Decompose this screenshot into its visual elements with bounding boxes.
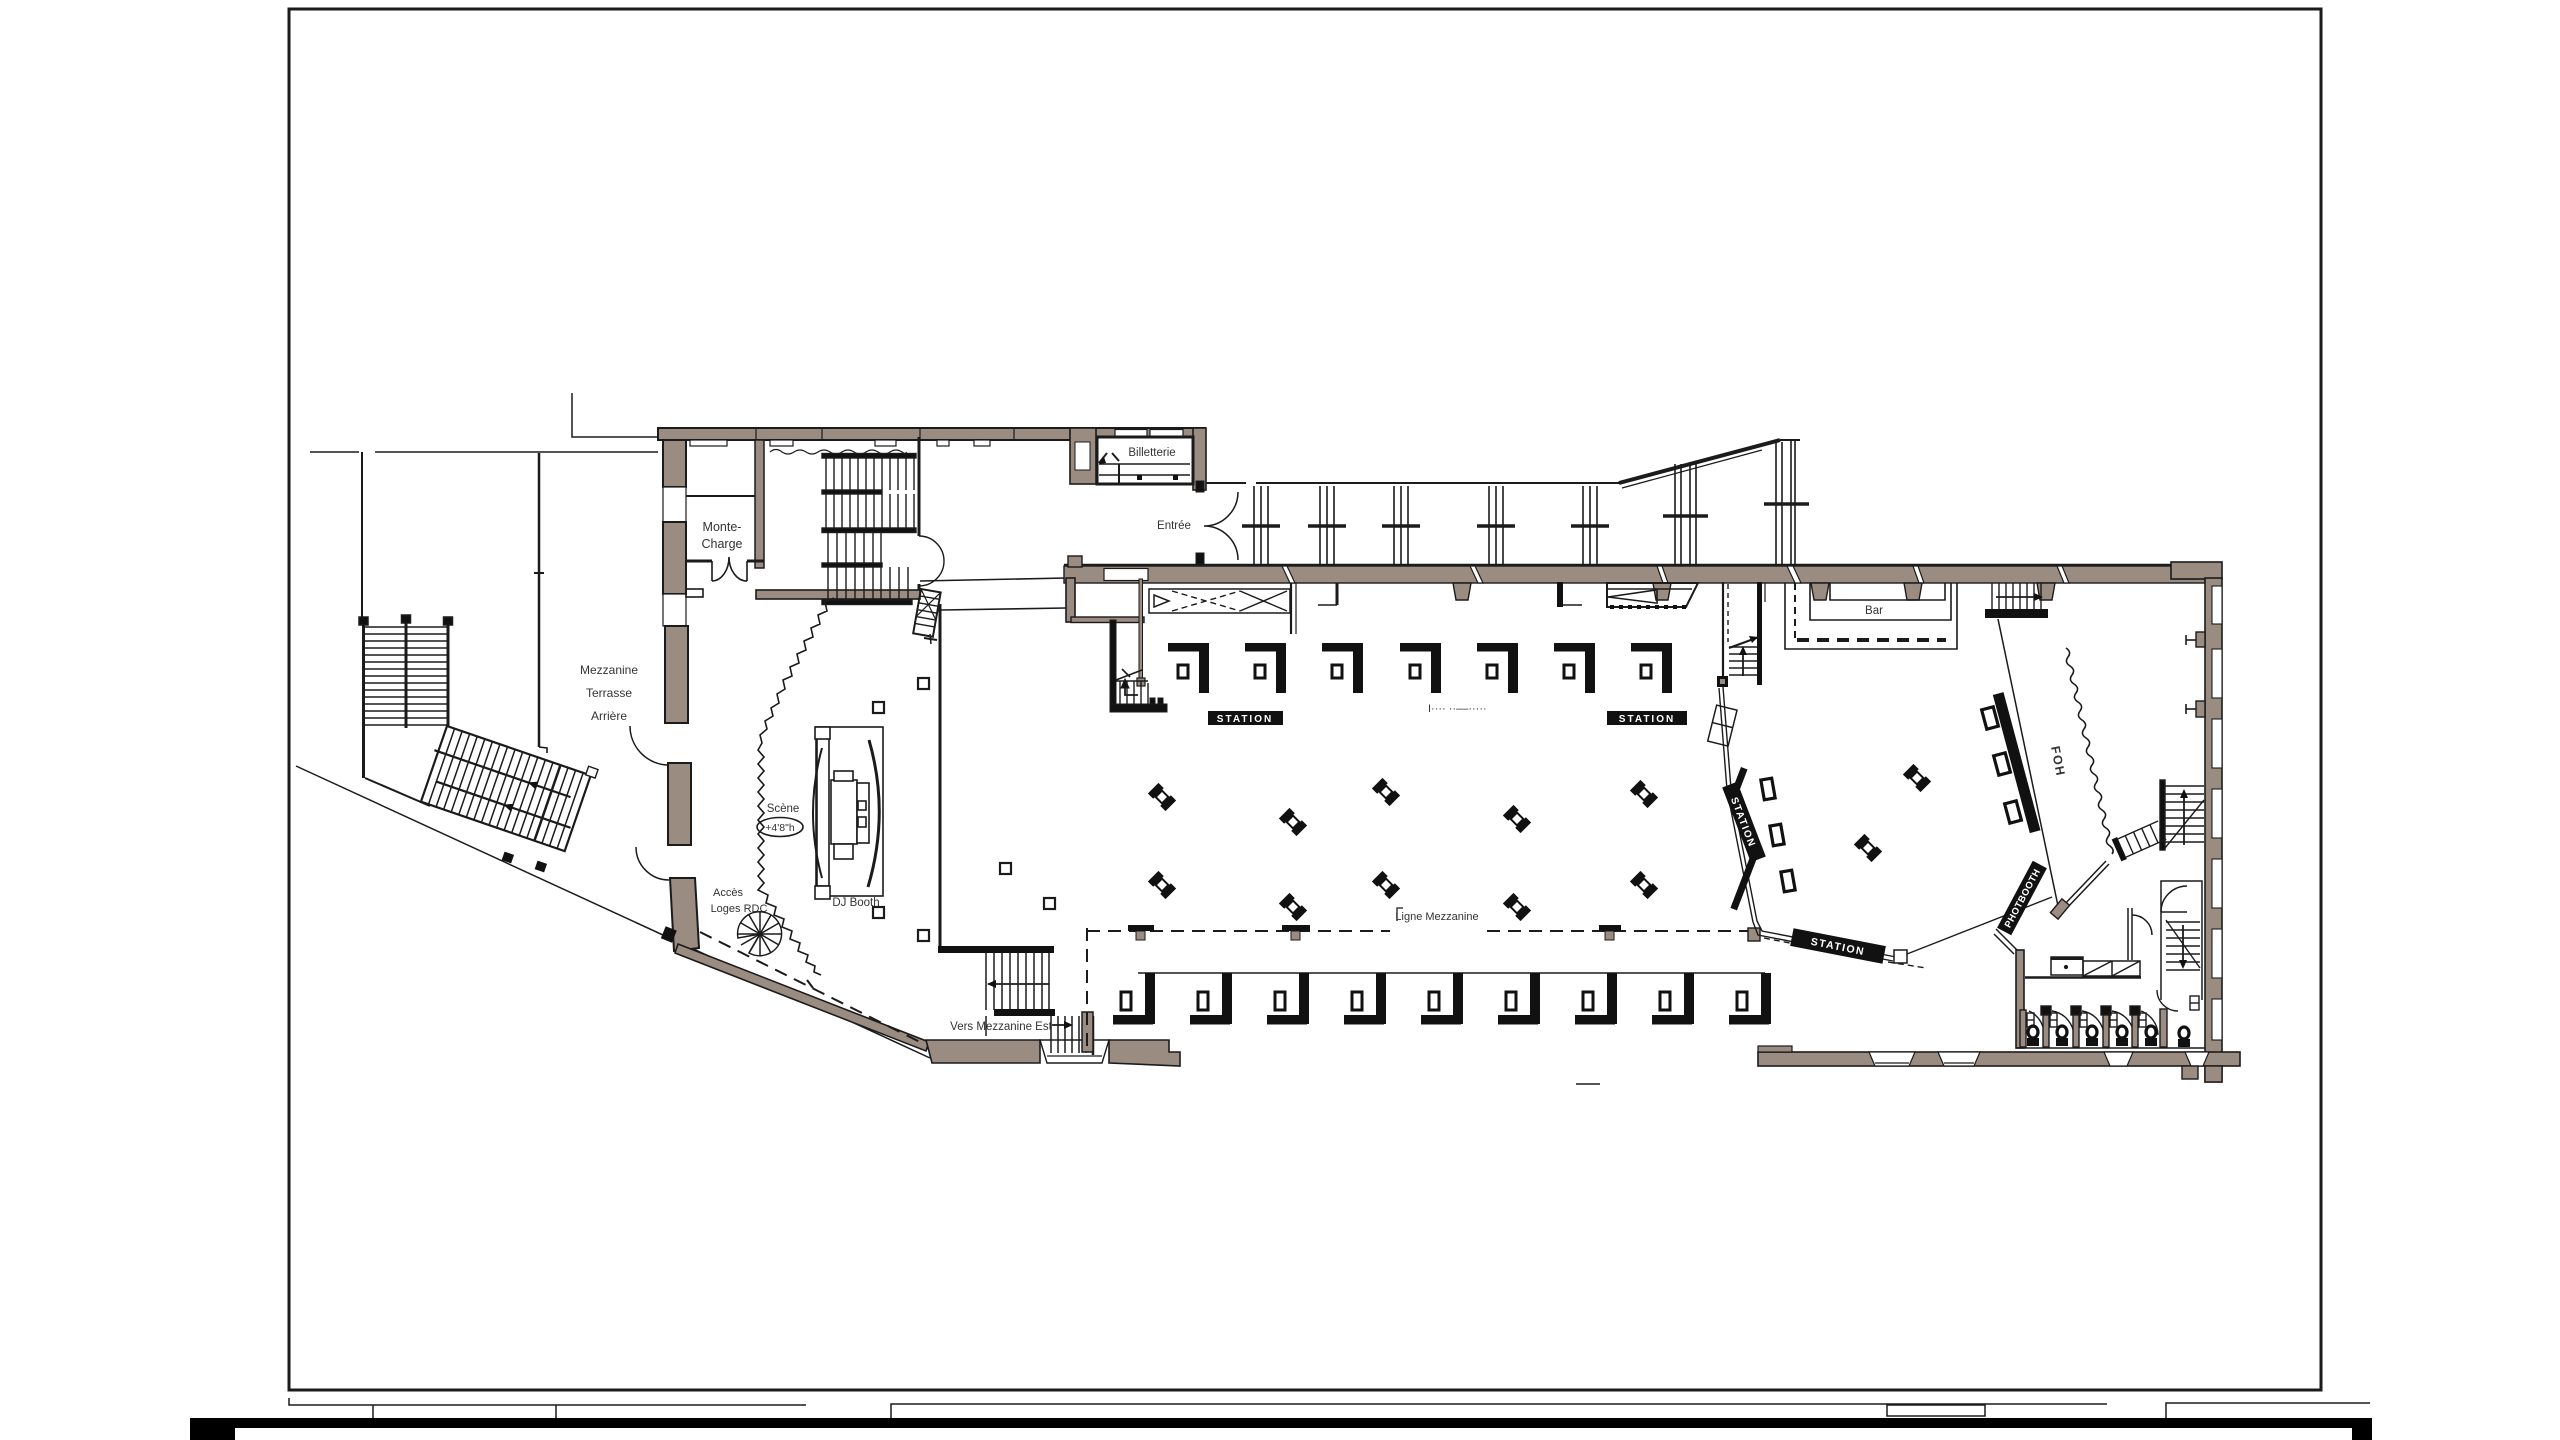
svg-text:Loges RDC: Loges RDC (711, 903, 768, 915)
svg-text:Accès: Accès (713, 887, 743, 899)
svg-text:Mezzanine: Mezzanine (580, 663, 638, 677)
svg-text:Scène: Scène (767, 803, 800, 815)
svg-text:Charge: Charge (702, 537, 743, 551)
svg-text:Monte-: Monte- (703, 520, 742, 534)
svg-text:Arrière: Arrière (591, 709, 627, 723)
svg-text:Entrée: Entrée (1157, 520, 1191, 532)
svg-text:Terrasse: Terrasse (586, 686, 632, 700)
svg-text:Bar: Bar (1865, 605, 1883, 617)
svg-text:STATION: STATION (1619, 714, 1675, 725)
svg-text:Vers Mezzanine Est: Vers Mezzanine Est (950, 1021, 1052, 1033)
svg-text:+4'8"h: +4'8"h (765, 822, 795, 834)
svg-text:Billetterie: Billetterie (1128, 447, 1175, 459)
svg-text:I···· ··––·····: I···· ··––····· (1428, 703, 1487, 715)
svg-text:Ligne Mezzanine: Ligne Mezzanine (1395, 911, 1478, 923)
svg-text:STATION: STATION (1217, 714, 1273, 725)
